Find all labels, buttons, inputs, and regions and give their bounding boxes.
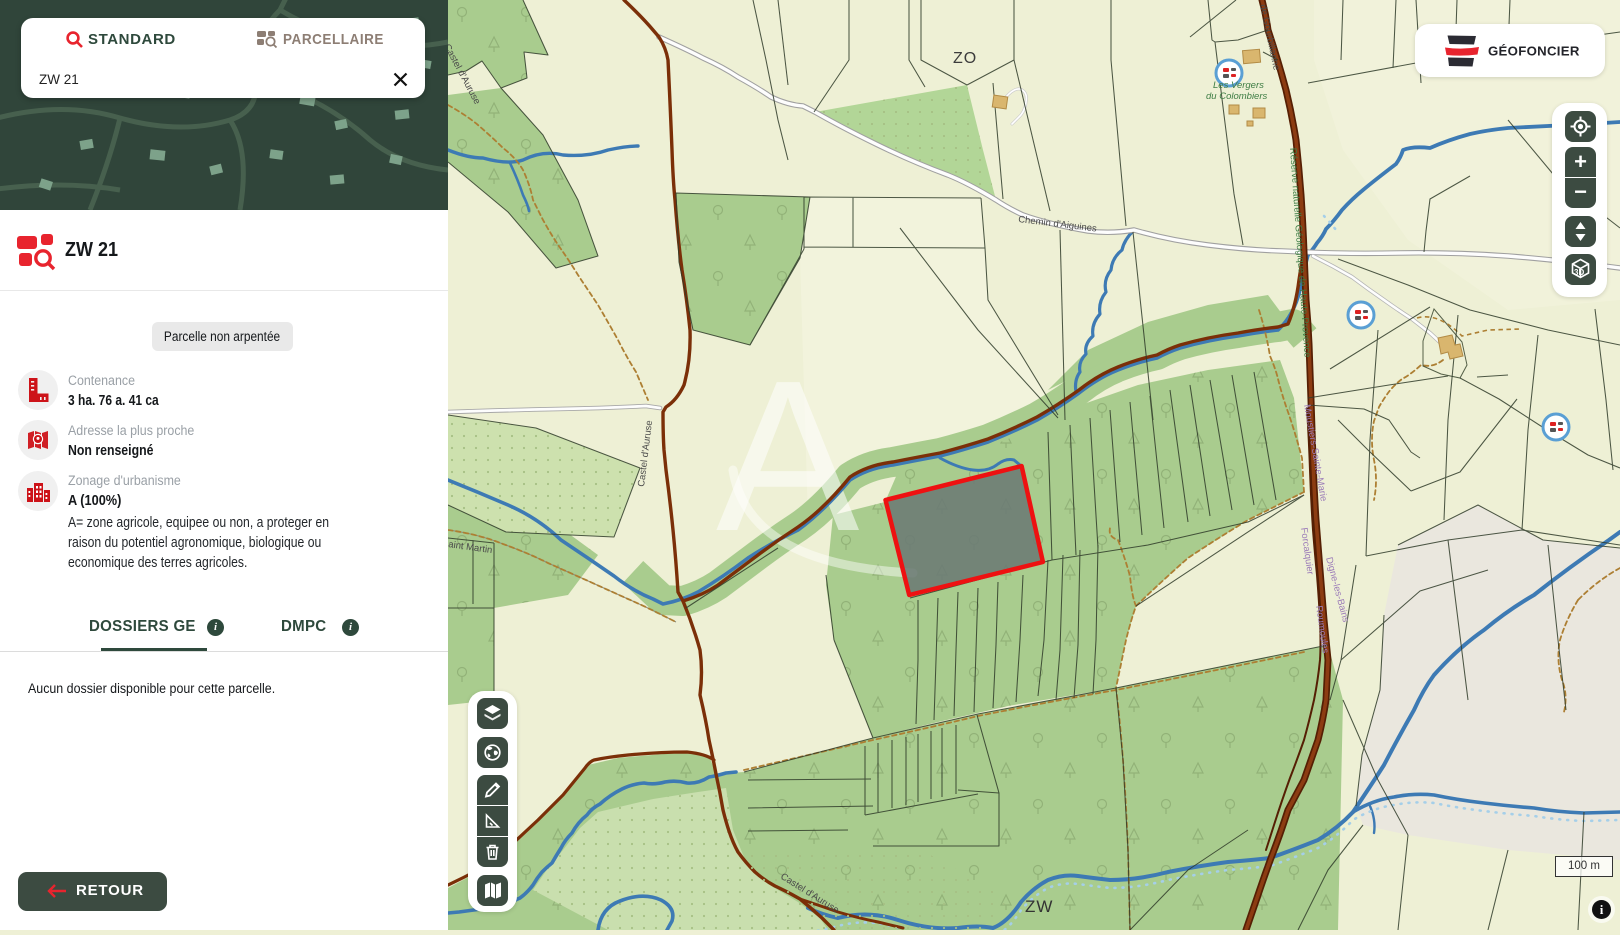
svg-text:Les Vergers: Les Vergers <box>1213 80 1264 91</box>
svg-text:3D: 3D <box>1574 268 1584 277</box>
svg-text:GÉOFONCIER: GÉOFONCIER <box>1488 44 1580 59</box>
svg-text:ZW: ZW <box>1025 897 1053 916</box>
svg-text:du Colombiers: du Colombiers <box>1206 91 1267 102</box>
svg-text:ZO: ZO <box>953 50 977 67</box>
